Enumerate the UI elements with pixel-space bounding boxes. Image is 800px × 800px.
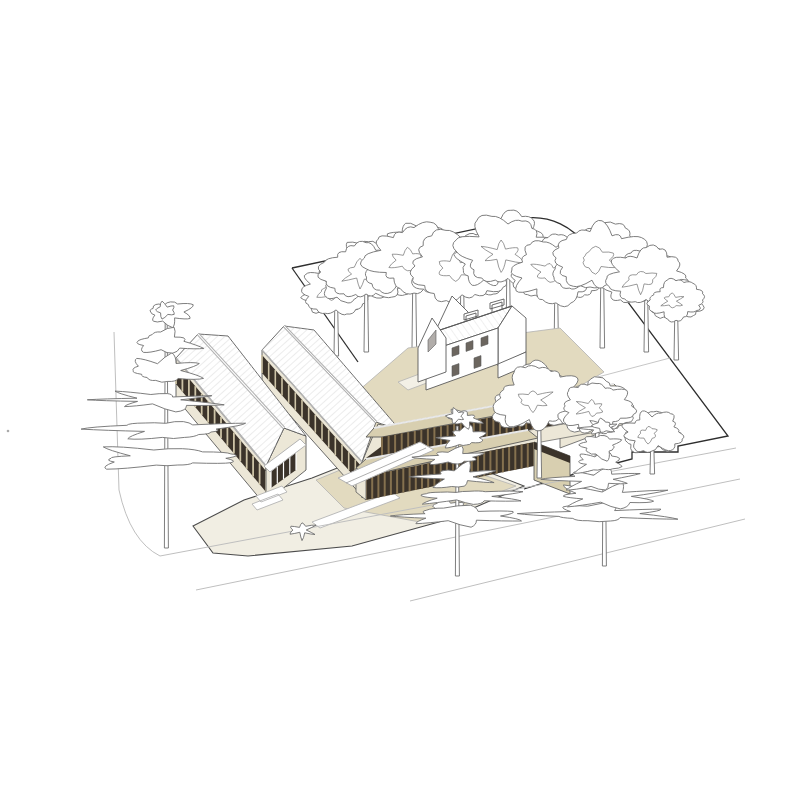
foliage-blob [103, 447, 236, 469]
illustration-canvas [0, 0, 800, 800]
curb-outer-b [410, 519, 745, 601]
foliage-blob [421, 491, 523, 504]
foliage-blob [517, 502, 678, 522]
site-axonometric-drawing [0, 0, 800, 800]
stray-mark [7, 430, 10, 433]
